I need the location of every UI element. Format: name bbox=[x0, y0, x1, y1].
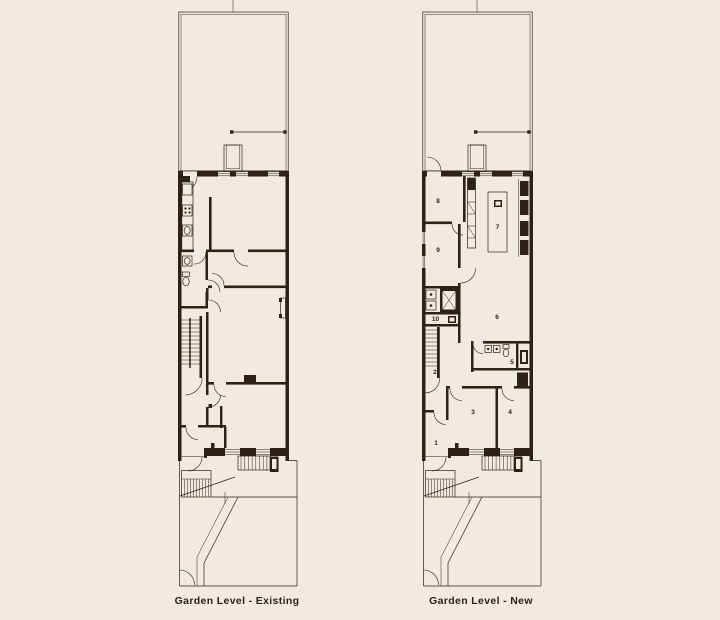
room-number-label: 5 bbox=[510, 359, 514, 366]
existing-plan: Garden Level - Existing bbox=[175, 0, 300, 607]
room-number-label: 6 bbox=[495, 314, 499, 321]
existing-plan-caption: Garden Level - Existing bbox=[175, 595, 300, 607]
room-number-label: 2 bbox=[433, 369, 437, 376]
room-number-label: 9 bbox=[436, 247, 440, 254]
room-number-label: 10 bbox=[432, 316, 440, 323]
floor-plan-drawing: Garden Level - Existing bbox=[0, 0, 720, 620]
blueprint-page: Garden Level - Existing bbox=[0, 0, 720, 620]
existing-interior bbox=[178, 176, 286, 448]
room-number-label: 7 bbox=[496, 224, 500, 231]
room-number-label: 1 bbox=[434, 440, 438, 447]
new-interior bbox=[422, 176, 530, 448]
room-number-label: 4 bbox=[508, 409, 512, 416]
room-number-labels: 1 2 3 4 5 6 7 8 9 10 bbox=[432, 198, 514, 447]
new-plan-caption: Garden Level - New bbox=[429, 595, 533, 607]
new-plan: 1 2 3 4 5 6 7 8 9 10 Garden Level - New bbox=[422, 0, 541, 607]
room-number-label: 8 bbox=[436, 198, 440, 205]
room-number-label: 3 bbox=[471, 409, 475, 416]
